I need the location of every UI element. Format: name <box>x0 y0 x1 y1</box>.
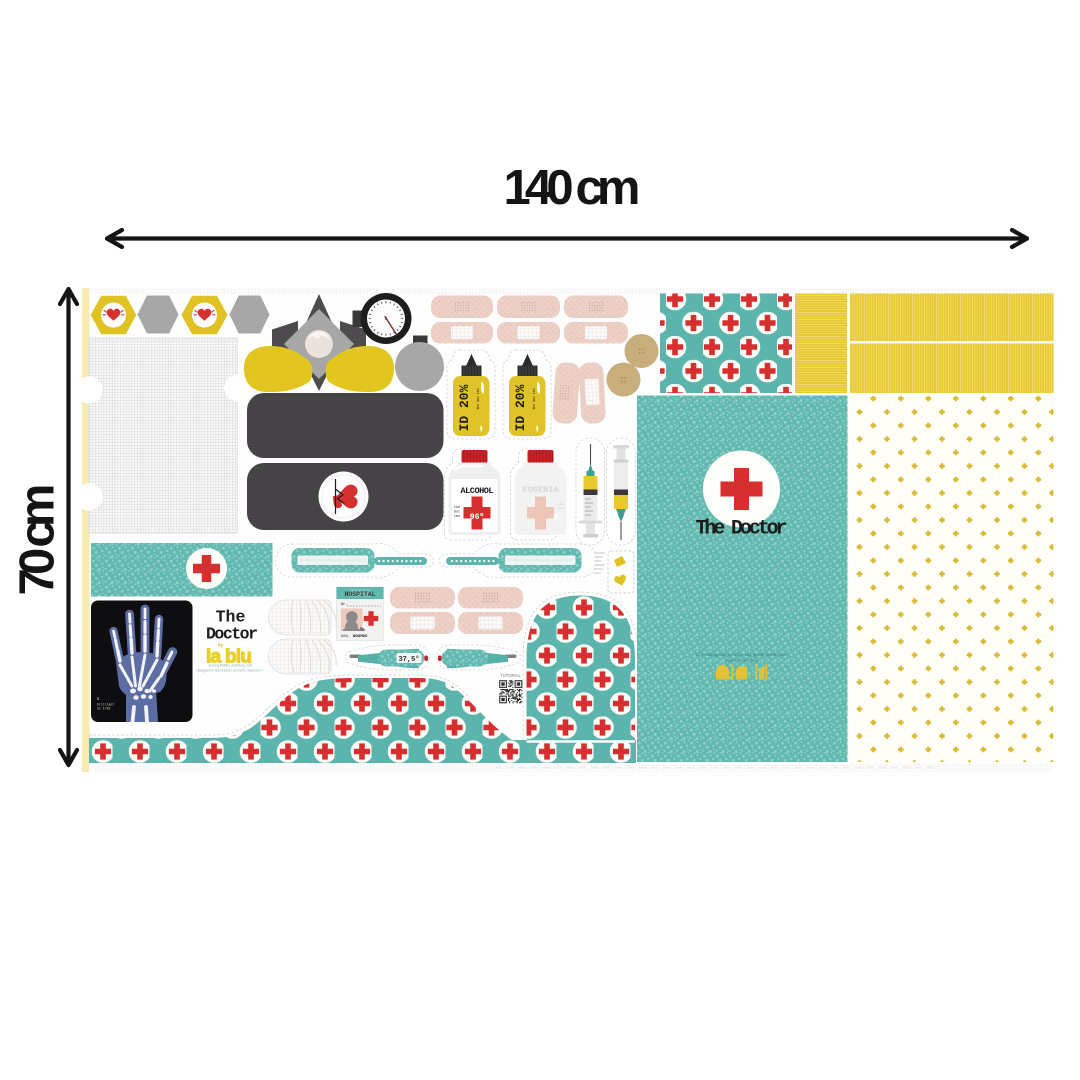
svg-text:www.lablu.barcelona: www.lablu.barcelona <box>725 659 758 663</box>
svg-text:EUGENIA: EUGENIA <box>523 485 560 495</box>
svg-text:ALCOHOL: ALCOHOL <box>461 486 494 496</box>
svg-text:96º: 96º <box>470 513 484 522</box>
svg-text:ID 20%: ID 20% <box>513 384 528 431</box>
svg-text:The Doctor: The Doctor <box>696 518 788 541</box>
svg-text:designed in Barcelona | all ri: designed in Barcelona | all rights reser… <box>197 669 264 673</box>
svg-text:37,5°: 37,5° <box>398 655 419 664</box>
svg-text:TUTORIAL: TUTORIAL <box>500 673 521 678</box>
svg-text:doc: doc <box>454 510 460 515</box>
svg-text:140 cm: 140 cm <box>504 161 641 215</box>
svg-text:sewing PANEL anleitung naïf: sewing PANEL anleitung naïf <box>208 664 252 668</box>
svg-text:the doc ten: the doc ten <box>532 388 536 409</box>
svg-text:the: the <box>454 505 460 510</box>
svg-text:70 cm: 70 cm <box>11 484 65 596</box>
svg-text:the doc ten: the doc ten <box>476 388 480 409</box>
svg-text:doc: doc <box>558 506 564 510</box>
svg-text:HOSPITAL: HOSPITAL <box>345 591 376 598</box>
svg-text:Doctor: Doctor <box>206 625 258 644</box>
svg-text:Dr.: Dr. <box>341 602 347 607</box>
svg-text:the: the <box>558 502 564 506</box>
svg-text:DRA. NOOMOS: DRA. NOOMOS <box>341 635 368 639</box>
svg-text:on 17%2: on 17%2 <box>97 707 110 711</box>
svg-text:ten: ten <box>454 515 460 519</box>
svg-text:ID 20%: ID 20% <box>457 384 472 431</box>
svg-text:a DIY sewing panel by la blu ·: a DIY sewing panel by la blu · step by s… <box>696 653 786 657</box>
